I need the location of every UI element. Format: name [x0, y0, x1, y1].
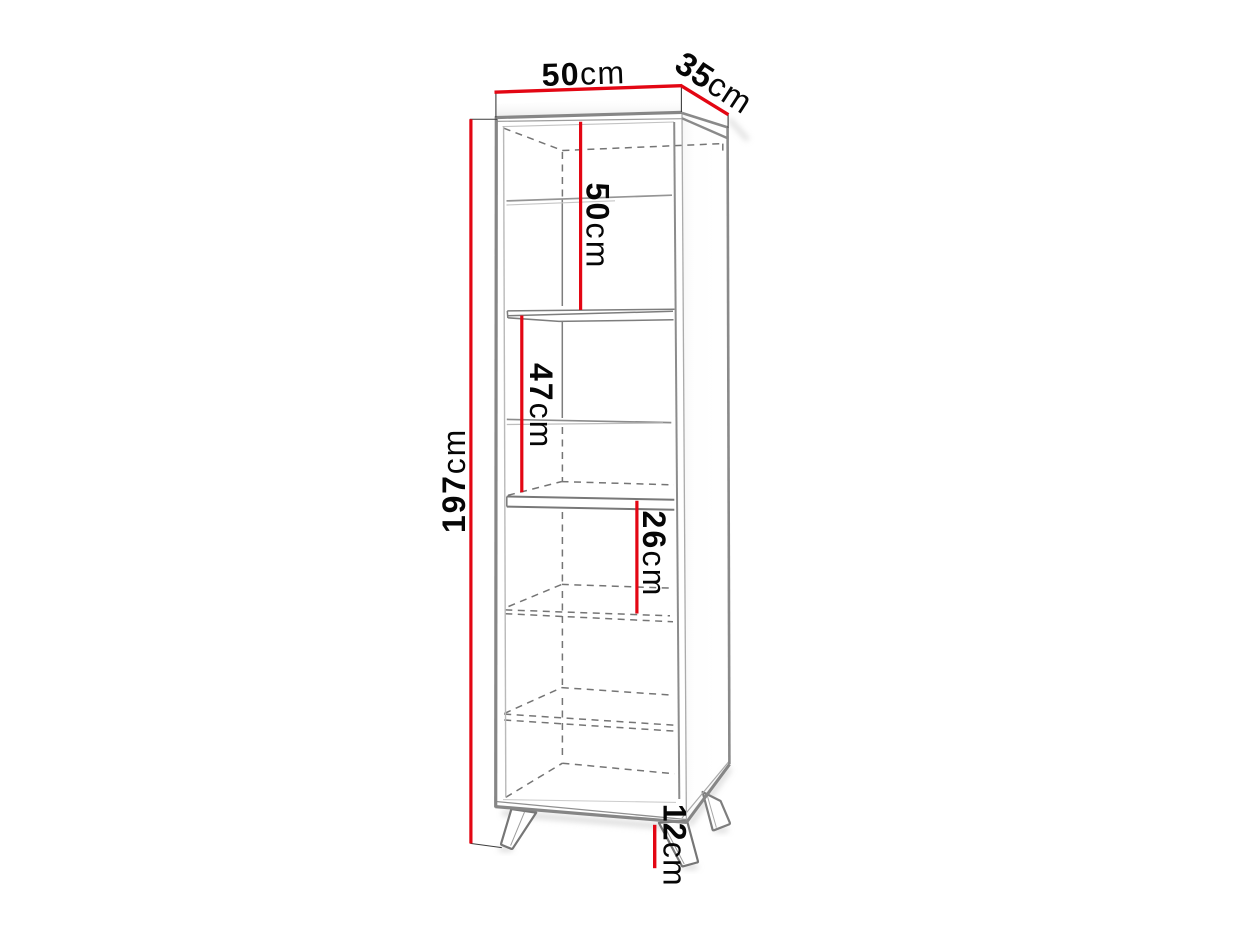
svg-text:50cm: 50cm	[541, 54, 626, 93]
svg-text:47cm: 47cm	[523, 363, 559, 449]
svg-text:197cm: 197cm	[436, 428, 472, 533]
svg-text:26cm: 26cm	[636, 511, 672, 598]
svg-text:50cm: 50cm	[580, 183, 616, 270]
svg-text:12cm: 12cm	[657, 804, 693, 887]
